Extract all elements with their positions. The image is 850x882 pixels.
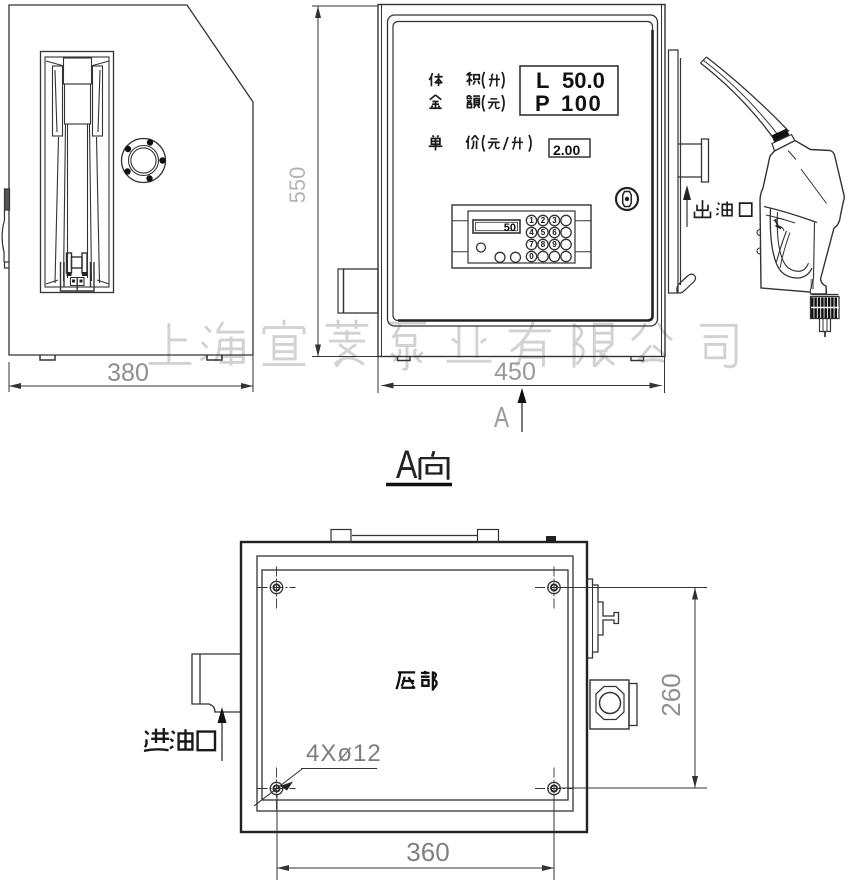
- svg-text:L: L: [536, 68, 549, 93]
- svg-text:1: 1: [529, 216, 534, 225]
- svg-text:6: 6: [552, 228, 557, 237]
- svg-text:4: 4: [529, 228, 534, 237]
- svg-text:50: 50: [504, 222, 516, 234]
- svg-text:A: A: [396, 442, 418, 487]
- svg-text:7: 7: [529, 240, 534, 249]
- svg-text:380: 380: [107, 359, 149, 387]
- svg-text:450: 450: [494, 358, 536, 386]
- svg-text:260: 260: [656, 673, 686, 716]
- svg-text:P: P: [535, 91, 550, 116]
- svg-text:2.00: 2.00: [553, 142, 580, 158]
- svg-text:4Xø12: 4Xø12: [306, 740, 382, 767]
- svg-text:A: A: [494, 400, 510, 433]
- svg-text:5: 5: [541, 228, 546, 237]
- svg-text:50.0: 50.0: [562, 68, 605, 93]
- svg-text:100: 100: [561, 91, 602, 116]
- svg-text:550: 550: [285, 167, 310, 204]
- svg-text:2: 2: [541, 216, 546, 225]
- svg-text:0: 0: [529, 252, 534, 261]
- svg-text:3: 3: [552, 216, 557, 225]
- svg-text:8: 8: [541, 240, 546, 249]
- svg-text:360: 360: [406, 837, 449, 867]
- svg-text:9: 9: [552, 240, 557, 249]
